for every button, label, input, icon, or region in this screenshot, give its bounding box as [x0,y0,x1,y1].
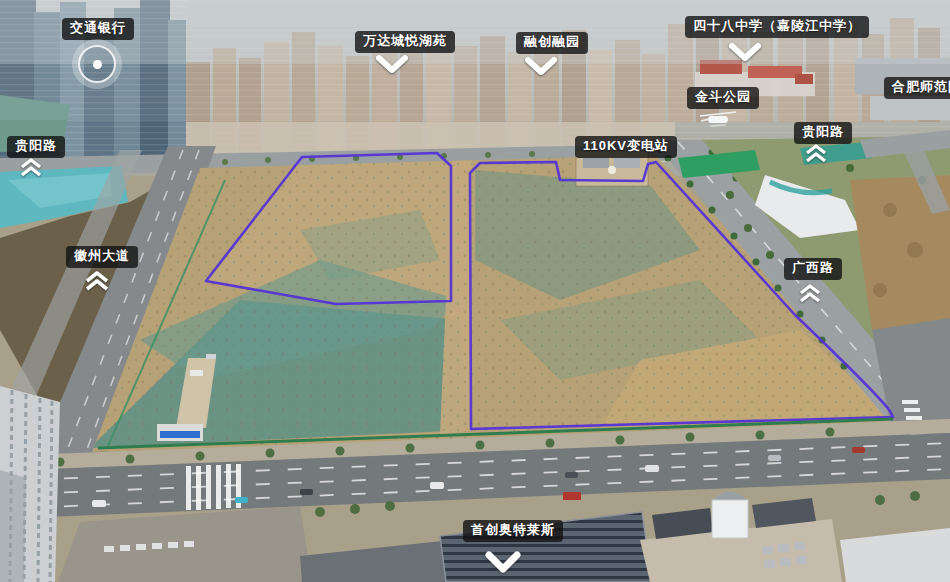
aerial-photo: 交通银行 万达城悦湖苑 融创融园 四十八中学（嘉陵江中学） 合肥师范附小 金斗公… [0,0,950,582]
label-jindou-park: 金斗公园 [687,87,759,109]
label-guangxi-road: 广西路 [784,258,842,280]
label-huizhou-text: 徽州大道 [74,248,130,263]
label-bank: 交通银行 [62,18,134,40]
down-arrow-icon [524,57,558,77]
label-sunac: 融创融园 [516,32,588,54]
label-no48-school-text: 四十八中学（嘉陵江中学） [693,18,861,33]
label-guiyang-road-right: 贵阳路 [794,122,852,144]
label-outlets-text: 首创奥特莱斯 [471,522,555,537]
label-normal-primary: 合肥师范附小 [884,77,950,99]
foreground-tower [0,386,60,582]
down-arrow-icon [375,55,409,75]
up-chevrons-icon [798,284,822,303]
up-chevrons-icon [84,271,110,291]
label-bank-text: 交通银行 [70,20,126,35]
label-wanda: 万达城悦湖苑 [355,31,455,53]
label-sunac-text: 融创融园 [524,34,580,49]
label-outlets: 首创奥特莱斯 [463,520,563,542]
label-jindou-park-text: 金斗公园 [695,89,751,104]
label-substation-text: 110KV变电站 [583,138,669,153]
down-arrow-icon [484,551,522,575]
label-wanda-text: 万达城悦湖苑 [363,33,447,48]
up-chevrons-icon [804,144,828,163]
label-no48-school: 四十八中学（嘉陵江中学） [685,16,869,38]
label-guiyang-right-text: 贵阳路 [802,124,844,139]
label-guiyang-left-text: 贵阳路 [15,138,57,153]
label-guangxi-text: 广西路 [792,260,834,275]
down-arrow-icon [728,43,762,63]
up-chevrons-icon [19,158,43,177]
location-ring-icon [78,45,116,83]
dome-tower [712,492,748,539]
label-guiyang-road-left: 贵阳路 [7,136,65,158]
label-huizhou-avenue: 徽州大道 [66,246,138,268]
label-normal-primary-text: 合肥师范附小 [892,79,950,94]
label-substation: 110KV变电站 [575,136,677,158]
